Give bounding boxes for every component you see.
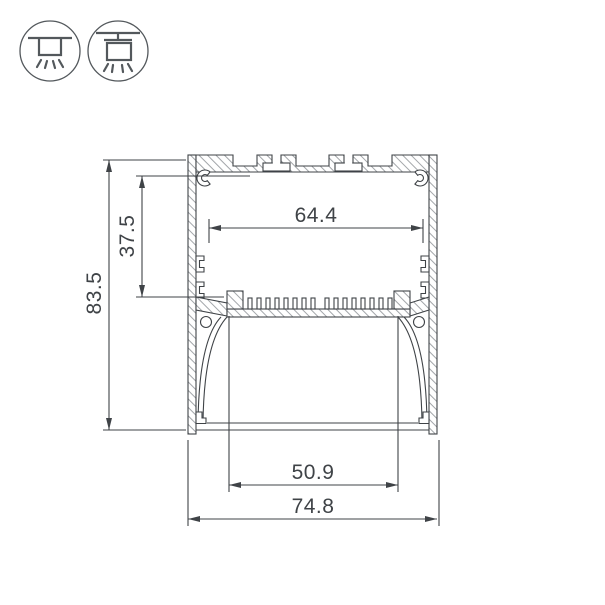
arrowhead (386, 482, 398, 488)
dim-top-cavity-width: 64.4 (209, 204, 423, 243)
surface-mount-icon (20, 21, 80, 81)
rib (343, 298, 347, 309)
t-slot-neck-right (345, 162, 352, 164)
arrowhead (425, 516, 437, 522)
dim-label-cavity-height: 37.5 (116, 215, 139, 258)
diffuser-arc-left-outer (198, 317, 221, 423)
rib (257, 298, 261, 309)
rib (248, 298, 252, 309)
plate-end-block-right (394, 291, 410, 309)
rib (352, 298, 356, 309)
dim-diffuser-width: 50.9 (229, 316, 398, 492)
dim-label-top-cavity-width: 64.4 (295, 204, 338, 227)
rib (284, 298, 288, 309)
diffuser-arc-right-outer (404, 317, 427, 423)
led-plate (227, 309, 410, 317)
diffuser-arcs (198, 317, 427, 423)
icon-circle (20, 21, 80, 81)
rib (370, 298, 374, 309)
rib (334, 298, 338, 309)
dim-cavity-height: 37.5 (116, 176, 250, 297)
c-clip-right (415, 170, 428, 186)
rib (275, 298, 279, 309)
c-clip-left (197, 170, 210, 186)
t-slot-neck-left (273, 162, 280, 164)
icon-circle (88, 21, 148, 81)
wall-groove-left-lower (196, 282, 204, 298)
wall-groove-right-lower (421, 282, 429, 298)
technical-drawing: 83.5 37.5 64.4 50.9 (0, 0, 605, 605)
dim-label-overall-width: 74.8 (292, 495, 335, 518)
plate-end-block-left (227, 291, 243, 309)
profile-cross-section (188, 155, 437, 434)
rib (266, 298, 270, 309)
arrowhead (209, 225, 221, 231)
plate-web-right (410, 297, 429, 316)
diffuser-hook-right (419, 412, 429, 424)
diffuser-arc-right-inner (398, 317, 422, 423)
dim-label-overall-height: 83.5 (83, 272, 106, 315)
dimensions: 83.5 37.5 64.4 50.9 (83, 160, 439, 526)
heatsink-ribs (248, 298, 392, 309)
arrowhead (229, 482, 241, 488)
dim-overall-height: 83.5 (83, 160, 186, 430)
arrowhead (139, 176, 145, 188)
arrowhead (139, 285, 145, 297)
screw-boss-right (414, 317, 425, 328)
diffuser-arc-left-inner (203, 317, 227, 423)
diffuser-hook-left (196, 412, 206, 424)
rib (388, 298, 392, 309)
rib (311, 298, 315, 309)
rib (293, 298, 297, 309)
dim-label-diffuser-width: 50.9 (292, 461, 335, 484)
profile-right-wall (429, 155, 437, 434)
rib (325, 298, 329, 309)
mount-icons (20, 21, 148, 81)
wall-groove-right-upper (421, 256, 429, 272)
profile-top-wall (196, 155, 429, 172)
wall-groove-left-upper (196, 256, 204, 272)
suspended-mount-icon (88, 21, 148, 81)
arrowhead (188, 516, 200, 522)
arrowhead (106, 160, 112, 172)
screw-boss-left (201, 317, 212, 328)
profile-left-wall (188, 155, 196, 434)
plate-web-left (196, 297, 227, 316)
rib (379, 298, 383, 309)
rib (302, 298, 306, 309)
arrowhead (411, 225, 423, 231)
rib (361, 298, 365, 309)
arrowhead (106, 418, 112, 430)
